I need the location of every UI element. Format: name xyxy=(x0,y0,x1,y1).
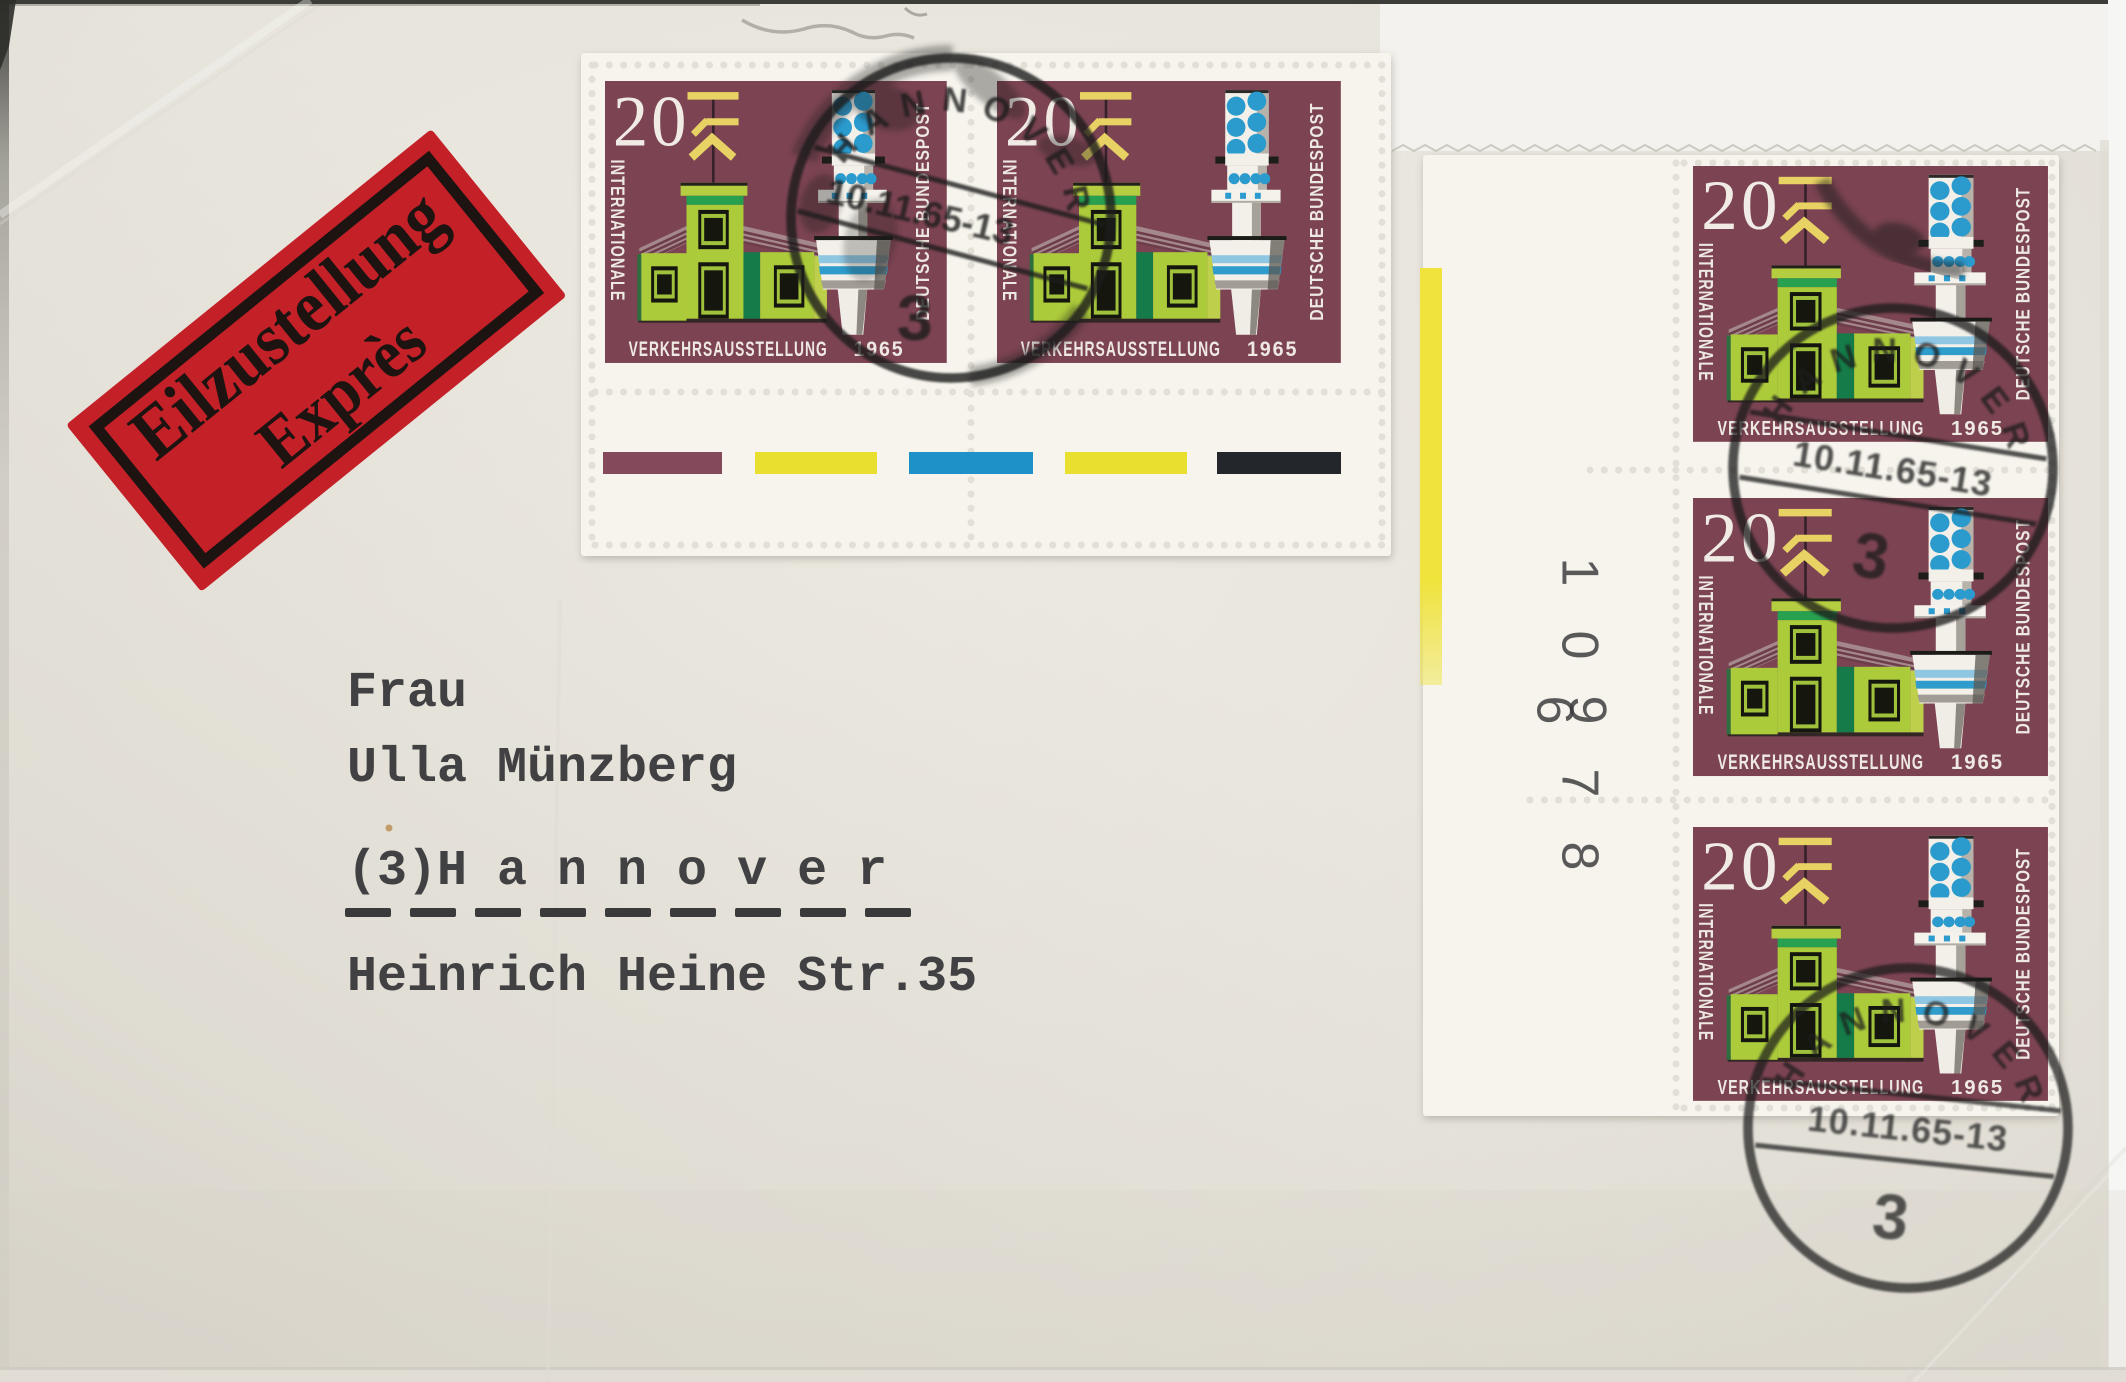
svg-text:7: 7 xyxy=(1550,769,1608,798)
svg-text:3: 3 xyxy=(897,282,933,354)
svg-text:(3)H a n n o v e r: (3)H a n n o v e r xyxy=(347,843,887,900)
svg-text:Frau: Frau xyxy=(347,665,467,722)
svg-text:Heinrich Heine Str.35: Heinrich Heine Str.35 xyxy=(347,949,977,1006)
svg-text:8: 8 xyxy=(1550,842,1608,871)
svg-text:9: 9 xyxy=(1558,696,1616,725)
svg-text:1: 1 xyxy=(1550,558,1608,587)
svg-text:0: 0 xyxy=(1550,631,1608,660)
svg-text:Ulla Münzberg: Ulla Münzberg xyxy=(347,740,737,797)
